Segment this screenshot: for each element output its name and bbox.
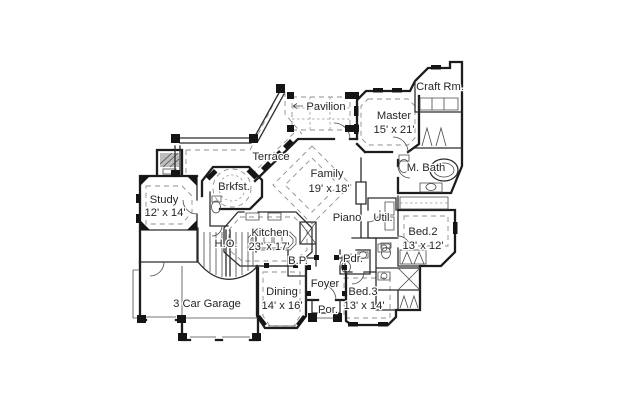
labels-layer: Pavilion Craft Rm. Master 15' x 21' Terr… [145, 81, 464, 316]
room-label-piano: Piano [333, 212, 362, 224]
room-label-util: Util. [373, 212, 392, 224]
sink-mbath [426, 184, 436, 191]
room-dims-dining: 14' x 16' [262, 300, 303, 312]
room-dims-family: 19' x 18' [309, 183, 350, 195]
room-dims-kitchen: 23' x 17' [249, 241, 290, 253]
room-label-study: Study [150, 194, 179, 206]
room-label-terrace: Terrace [252, 151, 289, 163]
room-label-porch: Por. [318, 304, 338, 316]
room-label-pavilion: Pavilion [306, 101, 345, 113]
room-label-master: Master [377, 110, 411, 122]
room-label-bp: B.P. [288, 255, 308, 267]
room-label-family: Family [311, 168, 344, 180]
room-label-garage: 3 Car Garage [173, 298, 241, 310]
room-label-foyer: Foyer [311, 278, 340, 290]
room-label-ho: H.O. [215, 238, 238, 250]
room-label-bed2: Bed.2 [408, 226, 437, 238]
room-dims-study: 12' x 14' [145, 207, 186, 219]
toilet-bath2 [382, 248, 391, 259]
floorplan-svg: Pavilion Craft Rm. Master 15' x 21' Terr… [0, 0, 620, 415]
room-label-dining: Dining [266, 286, 298, 298]
interior-walls [140, 81, 462, 313]
room-label-mbath: M. Bath [407, 162, 446, 174]
toilet-wc [212, 201, 221, 213]
room-label-craft: Craft Rm. [416, 81, 464, 93]
room-dims-bed2: 13' x 12' [403, 240, 444, 252]
room-dims-master: 15' x 21' [374, 124, 415, 136]
floorplan-canvas: Pavilion Craft Rm. Master 15' x 21' Terr… [0, 0, 620, 415]
room-dims-bed3: 13' x 14' [344, 300, 385, 312]
room-label-kitchen: Kitchen [251, 227, 288, 239]
room-label-brkfst: Brkfst. [218, 181, 250, 193]
room-label-bed3: Bed.3 [348, 286, 377, 298]
room-label-pdr: Pdr. [343, 253, 363, 265]
bed2-closet [400, 250, 426, 264]
